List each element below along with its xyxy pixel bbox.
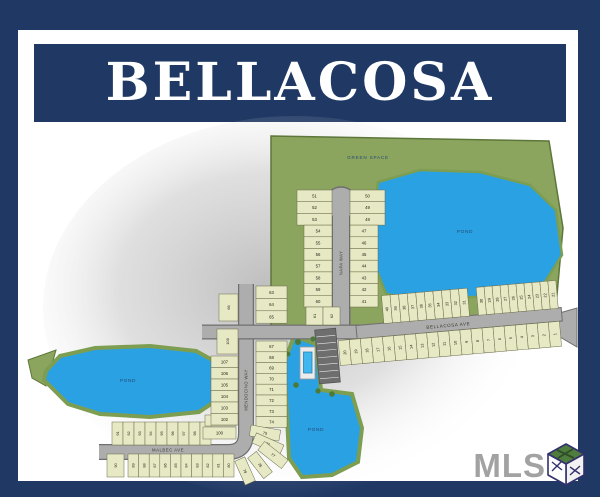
lot-number: 1 bbox=[552, 333, 557, 336]
lot-number: 87 bbox=[152, 463, 157, 467]
lot-number: 85 bbox=[173, 463, 178, 467]
lot-number: 56 bbox=[316, 252, 321, 257]
lot-number: 54 bbox=[316, 229, 321, 234]
amenity-area bbox=[315, 328, 341, 384]
lot-number: 104 bbox=[221, 394, 229, 399]
lot-number: 17 bbox=[375, 347, 380, 352]
lot-number: 36 bbox=[418, 304, 423, 309]
lot-number: 49 bbox=[365, 205, 370, 210]
lot-number: 25 bbox=[518, 295, 523, 300]
lot-number: 27 bbox=[502, 297, 507, 302]
lot-number: 108 bbox=[225, 338, 230, 345]
lot-number: 92 bbox=[126, 431, 131, 435]
lot-number: 75 bbox=[262, 430, 267, 436]
street-label-mendocino: MENDOCINO WAY bbox=[244, 369, 249, 411]
lot-number: 39 bbox=[393, 306, 398, 311]
lot-number: 71 bbox=[269, 387, 274, 392]
lot-number: 66 bbox=[226, 305, 231, 309]
lot-number: 32 bbox=[453, 301, 458, 306]
lot-number: 86 bbox=[163, 463, 168, 467]
lot-number: 9 bbox=[464, 341, 469, 344]
lot-number: 38 bbox=[401, 305, 406, 310]
lot-number: 105 bbox=[221, 382, 229, 387]
lot-number: 82 bbox=[205, 463, 210, 467]
mls-cube-icon bbox=[548, 444, 584, 485]
lot-number: 18 bbox=[364, 348, 369, 353]
lot-number: 41 bbox=[362, 299, 367, 304]
lot-number: 2 bbox=[541, 334, 546, 337]
lot-number: 60 bbox=[316, 299, 321, 304]
lot-number: 55 bbox=[316, 240, 321, 245]
lot-number: 52 bbox=[312, 205, 317, 210]
lot-number: 83 bbox=[194, 463, 199, 467]
lot-number: 3 bbox=[530, 335, 535, 338]
pond-center-label: POND bbox=[308, 427, 324, 433]
lot-number: 107 bbox=[221, 359, 229, 364]
lot-number: 42 bbox=[362, 287, 367, 292]
lot-number: 59 bbox=[316, 287, 321, 292]
lot-number: 81 bbox=[216, 463, 221, 467]
lot-number: 26 bbox=[510, 296, 515, 301]
lot-number: 72 bbox=[269, 398, 274, 403]
lot-number: 100 bbox=[216, 431, 224, 436]
lot-number: 68 bbox=[269, 355, 274, 360]
green-space-label: GREEN SPACE bbox=[347, 155, 389, 160]
lot-number: 44 bbox=[362, 264, 367, 269]
lot-number: 58 bbox=[316, 275, 321, 280]
lot-number: 74 bbox=[269, 420, 274, 425]
lot-number: 69 bbox=[269, 366, 274, 371]
lot-number: 12 bbox=[431, 342, 436, 347]
lot-number: 37 bbox=[410, 305, 415, 310]
lot-number: 33 bbox=[444, 302, 449, 307]
lot-number: 29 bbox=[486, 298, 491, 303]
lot-number: 7 bbox=[486, 339, 491, 342]
lot-number: 57 bbox=[316, 264, 321, 269]
lot-number: 11 bbox=[442, 342, 447, 346]
lot-number: 67 bbox=[269, 344, 274, 349]
lot-number: 16 bbox=[386, 346, 391, 351]
lot-number: 23 bbox=[534, 294, 539, 299]
lot-number: 89 bbox=[131, 463, 136, 467]
lot-number: 51 bbox=[312, 193, 317, 198]
lot-number: 103 bbox=[221, 405, 229, 410]
lot-number: 21 bbox=[550, 292, 555, 297]
lot-number: 73 bbox=[269, 409, 274, 414]
lot-number: 28 bbox=[494, 297, 499, 302]
lot-number: 22 bbox=[542, 293, 547, 298]
lot-number: 106 bbox=[221, 371, 229, 376]
pond-north-label: POND bbox=[457, 229, 473, 235]
mls-watermark-text: MLS bbox=[473, 447, 546, 484]
lot-number: 53 bbox=[312, 217, 317, 222]
lot-number: 91 bbox=[115, 431, 120, 435]
street-label-malbec: MALBEC AVE bbox=[152, 448, 184, 453]
lot-number: 64 bbox=[269, 302, 274, 307]
lot-number: 48 bbox=[365, 217, 370, 222]
lot-number: 43 bbox=[362, 275, 367, 280]
lot-number: 96 bbox=[170, 431, 175, 435]
lot-number: 46 bbox=[362, 240, 367, 245]
lot-number: 102 bbox=[221, 417, 229, 422]
lot-number: 97 bbox=[181, 431, 186, 435]
pond-west-label: POND bbox=[120, 378, 136, 384]
lot-number: 31 bbox=[461, 300, 466, 305]
lot-number: 98 bbox=[192, 431, 197, 435]
lot-number: 62 bbox=[329, 314, 334, 318]
lot-number: 45 bbox=[362, 252, 367, 257]
flyer-canvas: { "header": { "title": "BELLACOSA" }, "w… bbox=[0, 0, 600, 497]
lot-number: 15 bbox=[397, 345, 402, 350]
lot-number: 5 bbox=[508, 337, 513, 340]
pool bbox=[304, 352, 313, 373]
lot-number: 93 bbox=[137, 431, 142, 435]
lot-number: 88 bbox=[141, 463, 146, 467]
lot-number: 35 bbox=[427, 303, 432, 308]
lot-number: 63 bbox=[269, 290, 274, 295]
street-label-napa: NAPA WAY bbox=[339, 251, 344, 275]
lot-number: 95 bbox=[159, 431, 164, 435]
lot-number: 8 bbox=[475, 340, 480, 343]
lot-number: 61 bbox=[312, 314, 317, 318]
lot-number: 19 bbox=[353, 349, 358, 354]
lot-number: 47 bbox=[362, 229, 367, 234]
lot-number: 50 bbox=[365, 193, 370, 198]
lot-number: 65 bbox=[269, 315, 274, 320]
lot-number: 13 bbox=[419, 343, 424, 348]
lot-number: 70 bbox=[269, 376, 274, 381]
lot-number: 6 bbox=[497, 338, 502, 341]
site-plan-map: 4039383736353433323130292827262524232221… bbox=[0, 0, 600, 497]
pond-north bbox=[372, 170, 562, 300]
